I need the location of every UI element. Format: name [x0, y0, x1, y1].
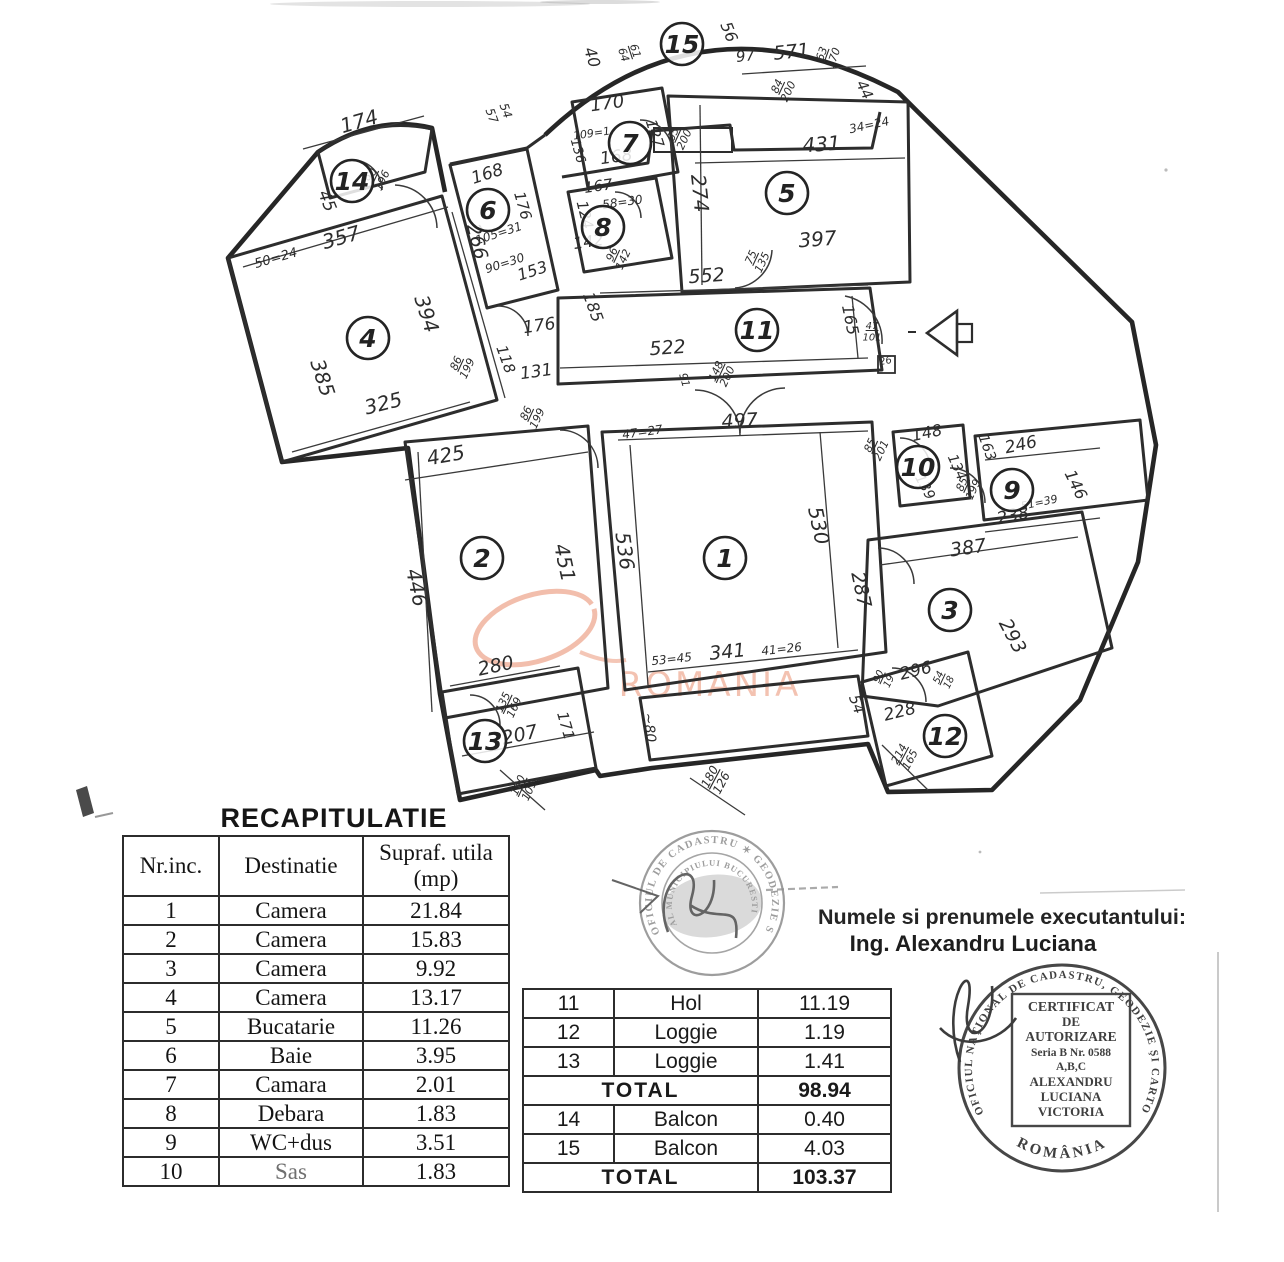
dim-label: 385 — [305, 356, 340, 400]
dim-label: 135169 — [493, 690, 525, 720]
table-cell: 6 — [123, 1041, 219, 1070]
annex-table: 11Hol11.1912Loggie1.1913Loggie1.41TOTAL9… — [522, 988, 892, 1193]
total-value: 98.94 — [758, 1076, 891, 1105]
room-number: 6 — [467, 189, 509, 231]
dim-label: 425 — [425, 440, 467, 470]
dim-label: 394 — [409, 292, 444, 336]
dim-label: 552 — [688, 264, 726, 288]
svg-text:9: 9 — [1003, 476, 1020, 505]
room-number: 3 — [929, 589, 971, 631]
dim-label: 171 — [553, 709, 578, 741]
svg-text:2: 2 — [473, 544, 490, 573]
table-cell: 3 — [123, 954, 219, 983]
dim-label: 41=26 — [761, 640, 803, 658]
svg-text:3: 3 — [941, 596, 958, 625]
cert-box-lines: CERTIFICAT DE AUTORIZARE Seria B Nr. 058… — [1025, 1000, 1116, 1119]
svg-text:13: 13 — [468, 727, 503, 756]
cert-romania-text: ROMÂNIA — [1014, 1135, 1109, 1162]
dim-label: 118 — [492, 343, 519, 376]
dim-label: 190101 — [508, 773, 540, 803]
svg-text:ROMÂNIA: ROMÂNIA — [1014, 1135, 1109, 1162]
table-cell: Camera — [219, 896, 363, 925]
table-cell: 15.83 — [363, 925, 509, 954]
table-cell: 21.84 — [363, 896, 509, 925]
table-row: 11Hol11.19 — [523, 989, 891, 1018]
entrance-arrow-icon — [908, 311, 972, 355]
dim-label: 497 — [721, 409, 758, 433]
executant-label: Numele si prenumele executantului: — [797, 905, 1207, 930]
room-number: 4 — [347, 317, 389, 359]
svg-text:6: 6 — [479, 196, 496, 225]
svg-text:Seria B Nr. 0588: Seria B Nr. 0588 — [1031, 1047, 1111, 1059]
table-row: TOTAL103.37 — [523, 1163, 891, 1192]
room-number: 15 — [661, 23, 703, 65]
dim-label: 86199 — [516, 401, 548, 431]
recap-header-row: Nr.inc. Destinatie Supraf. utila (mp) — [123, 836, 509, 896]
table-cell: 10 — [123, 1157, 219, 1186]
table-cell: 12 — [523, 1018, 614, 1047]
table-cell: 1.83 — [363, 1099, 509, 1128]
table-cell: Baie — [219, 1041, 363, 1070]
header-nr: Nr.inc. — [123, 836, 219, 896]
room-number: 8 — [582, 206, 624, 248]
dim-label: 75135 — [741, 245, 773, 275]
table-cell: WC+dus — [219, 1128, 363, 1157]
total-label: TOTAL — [523, 1163, 758, 1192]
table-cell: 7 — [123, 1070, 219, 1099]
room-number: 12 — [924, 715, 966, 757]
dim-label: 180126 — [698, 763, 733, 796]
table-row: 14Balcon0.40 — [523, 1105, 891, 1134]
table-cell: Sas — [219, 1157, 363, 1186]
table-cell: Camara — [219, 1070, 363, 1099]
svg-text:5: 5 — [778, 179, 795, 208]
table-cell: Bucatarie — [219, 1012, 363, 1041]
room-number: 2 — [461, 537, 503, 579]
table-cell: 1 — [123, 896, 219, 925]
table-row: 13Loggie1.41 — [523, 1047, 891, 1076]
dim-label: 571 — [772, 39, 810, 65]
table-row: 5Bucatarie11.26 — [123, 1012, 509, 1041]
header-destinatie: Destinatie — [219, 836, 363, 896]
svg-text:A,B,C: A,B,C — [1056, 1061, 1086, 1073]
dim-label: 167 — [583, 175, 614, 197]
table-row: 9WC+dus3.51 — [123, 1128, 509, 1157]
svg-text:11: 11 — [740, 316, 775, 345]
room-number: 5 — [766, 172, 808, 214]
dim-label: 168 — [469, 160, 506, 189]
dim-label: 185 — [579, 290, 607, 325]
table-row: 3Camera9.92 — [123, 954, 509, 983]
scanned-cadastral-document: ROMANIA — [0, 0, 1284, 1262]
room-number: 7 — [609, 122, 651, 164]
table-cell: Debara — [219, 1099, 363, 1128]
table-cell: 3.51 — [363, 1128, 509, 1157]
table-cell: 4 — [123, 983, 219, 1012]
executant-name: Ing. Alexandru Luciana — [793, 931, 1153, 957]
dim-label: 446 — [401, 566, 432, 608]
table-cell: 4.03 — [758, 1134, 891, 1163]
dim-label: 131 — [519, 360, 554, 384]
table-cell: 3.95 — [363, 1041, 509, 1070]
table-cell: 11.19 — [758, 989, 891, 1018]
svg-text:DE: DE — [1062, 1014, 1080, 1029]
svg-text:4: 4 — [358, 324, 376, 353]
dim-label: 91 — [676, 372, 692, 389]
table-cell: 11.26 — [363, 1012, 509, 1041]
table-cell: Loggie — [614, 1047, 758, 1076]
dim-label: 85201 — [860, 433, 892, 463]
dim-label: 40 — [580, 45, 604, 70]
table-row: 6Baie3.95 — [123, 1041, 509, 1070]
dim-label: 431 — [802, 131, 842, 158]
table-cell: Hol — [614, 989, 758, 1018]
table-cell: 14 — [523, 1105, 614, 1134]
svg-text:ALEXANDRU: ALEXANDRU — [1029, 1074, 1113, 1089]
svg-text:7: 7 — [621, 129, 639, 158]
table-row: 4Camera13.17 — [123, 983, 509, 1012]
svg-text:15: 15 — [665, 30, 700, 59]
table-cell: Loggie — [614, 1018, 758, 1047]
dim-label: 176 — [522, 314, 557, 338]
room-number: 14 — [331, 160, 373, 202]
svg-text:LUCIANA: LUCIANA — [1041, 1089, 1102, 1104]
table-cell: 2 — [123, 925, 219, 954]
dim-label: 148 — [910, 420, 944, 445]
dim-label: 228 — [882, 698, 919, 725]
svg-text:14: 14 — [335, 167, 370, 196]
table-row: 8Debara1.83 — [123, 1099, 509, 1128]
dim-label: 341 — [708, 639, 746, 665]
dim-label: 451 — [549, 541, 580, 583]
dim-label: 86199 — [446, 351, 478, 381]
dim-label: 65200 — [663, 122, 695, 152]
table-row: TOTAL98.94 — [523, 1076, 891, 1105]
dim-label: 97 — [735, 46, 756, 66]
table-cell: Balcon — [614, 1134, 758, 1163]
dim-label: 397 — [798, 226, 838, 253]
table-cell: Camera — [219, 954, 363, 983]
table-cell: Camera — [219, 925, 363, 954]
room-number: 13 — [464, 720, 506, 762]
dim-label: 325 — [362, 387, 405, 420]
dim-label: 214165 — [889, 742, 921, 772]
dim-label: 293 — [994, 615, 1030, 657]
svg-text:8: 8 — [594, 213, 611, 242]
table-cell: 2.01 — [363, 1070, 509, 1099]
svg-text:CERTIFICAT: CERTIFICAT — [1028, 1000, 1115, 1015]
table-row: 12Loggie1.19 — [523, 1018, 891, 1047]
ink-blot — [76, 786, 94, 817]
dim-label: 387 — [949, 535, 988, 562]
table-row: 15Balcon4.03 — [523, 1134, 891, 1163]
table-cell: 5 — [123, 1012, 219, 1041]
dim-label: 5418 — [931, 670, 957, 691]
svg-text:10: 10 — [901, 453, 936, 482]
room-number: 11 — [736, 309, 778, 351]
room-number: 1 — [704, 537, 746, 579]
dim-label: 6164 — [615, 42, 643, 63]
table-row: 1Camera21.84 — [123, 896, 509, 925]
table-row: 2Camera15.83 — [123, 925, 509, 954]
table-cell: 9 — [123, 1128, 219, 1157]
dim-label: 357 — [319, 220, 363, 254]
dim-label: 176 — [510, 189, 535, 221]
table-cell: 1.41 — [758, 1047, 891, 1076]
table-cell: 9.92 — [363, 954, 509, 983]
recap-title: RECAPITULATIE — [214, 803, 454, 834]
total-label: TOTAL — [523, 1076, 758, 1105]
table-cell: 0.40 — [758, 1105, 891, 1134]
dim-label: 165 — [838, 303, 863, 337]
table-cell: Camera — [219, 983, 363, 1012]
dim-label: 174 — [337, 104, 380, 138]
dim-label: 34=24 — [848, 114, 891, 136]
table-cell: 1.19 — [758, 1018, 891, 1047]
room-number: 10 — [897, 446, 939, 488]
svg-text:VICTORIA: VICTORIA — [1038, 1104, 1105, 1119]
table-cell: Balcon — [614, 1105, 758, 1134]
table-cell: 15 — [523, 1134, 614, 1163]
table-cell: 8 — [123, 1099, 219, 1128]
dim-label: 530 — [803, 504, 834, 546]
dim-label: 274 — [686, 173, 714, 213]
dim-label: 170 — [589, 91, 626, 117]
table-cell: 13.17 — [363, 983, 509, 1012]
dim-label: 56 — [716, 19, 741, 45]
recap-table: Nr.inc. Destinatie Supraf. utila (mp) 1C… — [122, 835, 510, 1187]
dim-label: 522 — [649, 336, 687, 360]
table-row: 7Camara2.01 — [123, 1070, 509, 1099]
dim-label: 26 — [878, 355, 892, 368]
svg-text:AUTORIZARE: AUTORIZARE — [1025, 1029, 1116, 1044]
dim-label: 296 — [898, 657, 935, 684]
room-number: 9 — [991, 469, 1033, 511]
dim-label: 136 — [567, 137, 588, 165]
table-cell: 13 — [523, 1047, 614, 1076]
dim-label: ~80 — [639, 712, 658, 743]
dim-label: 287 — [846, 570, 875, 610]
svg-text:12: 12 — [928, 722, 963, 751]
svg-text:1: 1 — [716, 544, 733, 573]
dim-label: 146 — [1061, 467, 1091, 503]
total-value: 103.37 — [758, 1163, 891, 1192]
table-row: 10Sas1.83 — [123, 1157, 509, 1186]
table-cell: 1.83 — [363, 1157, 509, 1186]
header-suprafata: Supraf. utila (mp) — [363, 836, 509, 896]
table-cell: 11 — [523, 989, 614, 1018]
